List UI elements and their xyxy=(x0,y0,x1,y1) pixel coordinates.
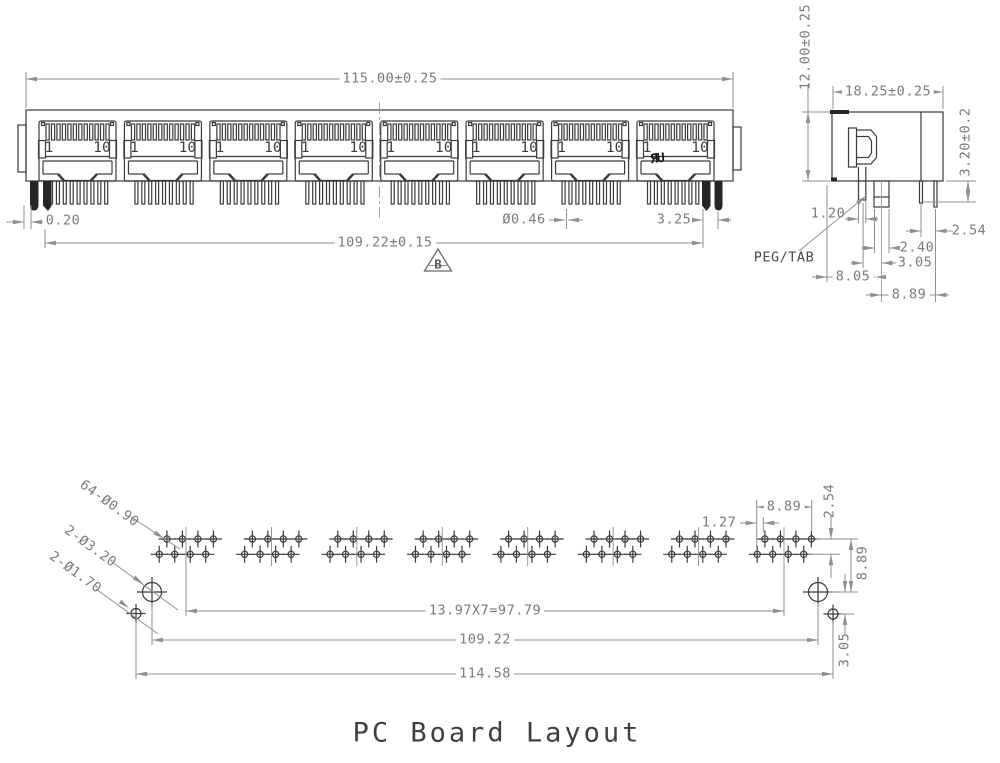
dim-group-span: 8.89 xyxy=(764,500,805,514)
port-number-label: 1 xyxy=(386,141,395,156)
dim-hole-stagger: 1.27 xyxy=(702,516,737,530)
port-number-label: 1 xyxy=(643,141,652,156)
dim-shield-pin-width: 1.20 xyxy=(811,207,846,221)
port-number-label: 10 xyxy=(435,141,452,156)
dim-row-pitch: 2.54 xyxy=(823,484,837,519)
port-number-label: 1 xyxy=(557,141,566,156)
page-title: PC Board Layout xyxy=(353,718,642,749)
dim-peg-width: 2.40 xyxy=(900,241,935,255)
dim-shield-offset: 0.20 xyxy=(46,214,81,228)
dim-side-pin-length: 3.20±0.2 xyxy=(959,107,973,176)
port-number-label: 1 xyxy=(301,141,310,156)
port-number-label: 1 xyxy=(215,141,224,156)
port-number-label: 1 xyxy=(130,141,139,156)
dim-front-to-peg: 8.05 xyxy=(833,270,874,284)
dim-peg-hole-span: 109.22 xyxy=(456,633,514,647)
dim-pitch-equation: 13.97X7=97.79 xyxy=(426,604,544,618)
port-number-label: 10 xyxy=(606,141,623,156)
dim-front-width: 115.00±0.25 xyxy=(340,72,441,86)
dimension-arrows xyxy=(13,77,970,677)
dim-row-to-peg-hole: 8.89 xyxy=(856,546,870,581)
dim-peg-offset: 3.25 xyxy=(657,213,692,227)
dim-mount-hole-span: 114.58 xyxy=(456,667,514,681)
dim-pin-diameter: Ø0.46 xyxy=(502,213,545,227)
port-number-label: 10 xyxy=(350,141,367,156)
technical-drawing-page: 115.00±0.25 109.22±0.15 0.20 Ø0.46 3.25 … xyxy=(0,0,1000,763)
peg-tab-label: PEG/TAB xyxy=(754,251,814,265)
dim-peg-to-mount-hole: 3.05 xyxy=(838,633,852,668)
revision-triangle-label: B xyxy=(434,257,442,272)
dim-side-height: 12.00±0.25 xyxy=(799,4,813,90)
port-number-label: 10 xyxy=(264,141,281,156)
port-number-label: 10 xyxy=(520,141,537,156)
dim-peg-to-pin: 8.89 xyxy=(889,288,930,302)
dim-side-pin-pitch: 2.54 xyxy=(952,224,987,238)
dim-pin-to-peg: 3.05 xyxy=(898,256,933,270)
ul-recognized-icon: ЯU xyxy=(649,151,664,167)
port-number-label: 1 xyxy=(472,141,481,156)
connector-geometry xyxy=(18,110,943,624)
dim-side-depth: 18.25±0.25 xyxy=(842,85,934,99)
port-number-label: 10 xyxy=(691,141,708,156)
port-number-label: 10 xyxy=(93,141,110,156)
port-number-label: 10 xyxy=(179,141,196,156)
dim-front-pin-span: 109.22±0.15 xyxy=(335,236,436,250)
port-number-label: 1 xyxy=(45,141,54,156)
